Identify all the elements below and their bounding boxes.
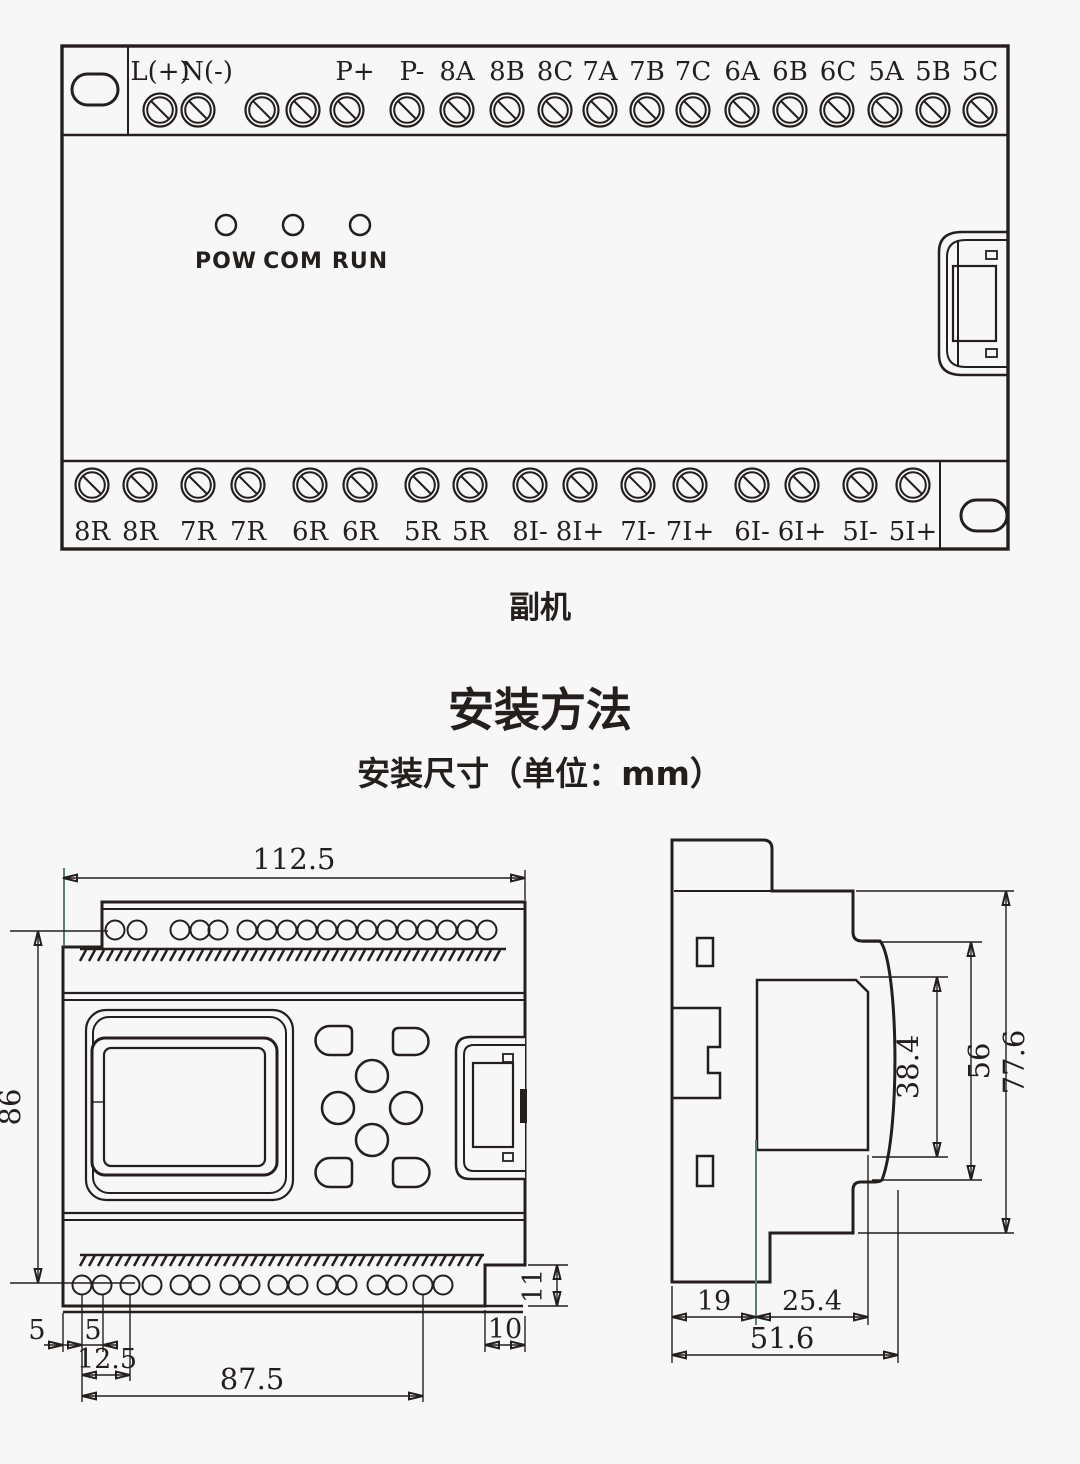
bottom-terminal-labels: 8R 8R 7R 7R 6R 6R 5R 5R 8I- 8I+ 7I- 7I+ … bbox=[74, 517, 937, 547]
screw-terminal-icon bbox=[774, 94, 807, 127]
terminal-label: 5R bbox=[404, 517, 442, 547]
terminal-label: 5B bbox=[915, 57, 951, 87]
screw-terminal-icon bbox=[539, 94, 572, 127]
screw-terminal-icon bbox=[76, 469, 109, 502]
terminal-label: 8R bbox=[122, 517, 160, 547]
dim-seg-mid-value: 25.4 bbox=[782, 1286, 842, 1317]
side-front-face bbox=[757, 980, 868, 1150]
keypad-button bbox=[316, 1158, 353, 1187]
keypad-button-right bbox=[390, 1092, 422, 1124]
terminal-label: 6R bbox=[292, 517, 330, 547]
led-com-icon bbox=[283, 215, 303, 235]
terminal-label: 8B bbox=[489, 57, 525, 87]
led-com-label: COM bbox=[263, 249, 323, 274]
screw-terminal-icon bbox=[786, 469, 819, 502]
screw-terminal-icon bbox=[491, 94, 524, 127]
lcd-screen bbox=[92, 1038, 277, 1175]
dim-hole-span-value: 87.5 bbox=[220, 1362, 285, 1396]
screw-terminal-icon bbox=[344, 469, 377, 502]
installation-dimension-drawing: 112.5 86 5 5 12.5 bbox=[0, 820, 1080, 1464]
bottom-terminal-screws bbox=[76, 469, 930, 502]
terminal-label: 8R bbox=[74, 517, 112, 547]
screw-terminal-icon bbox=[917, 94, 950, 127]
terminal-label: 6A bbox=[724, 57, 761, 87]
dim-side-base-chain: 19 25.4 51.6 bbox=[672, 1140, 898, 1363]
dim-side-body-depth-value: 56 bbox=[962, 1043, 996, 1080]
dim-first-group-value: 12.5 bbox=[77, 1344, 137, 1375]
side-view bbox=[672, 840, 895, 1282]
top-terminal-labels: L(+) N(-) P+ P- 8A 8B 8C 7A 7B 7C 6A 6B … bbox=[130, 57, 998, 87]
dim-hole-pitch-value: 5 bbox=[84, 1315, 101, 1346]
terminal-label: 8I+ bbox=[556, 517, 605, 547]
front-bottom-holes bbox=[73, 1276, 453, 1295]
screw-terminal-icon bbox=[441, 94, 474, 127]
terminal-label: 8I- bbox=[512, 517, 548, 547]
page: L(+) N(-) P+ P- 8A 8B 8C 7A 7B 7C 6A 6B … bbox=[0, 0, 1080, 1464]
din-serration-top bbox=[80, 950, 500, 961]
screw-terminal-icon bbox=[182, 94, 215, 127]
dim-side-front-depth: 38.4 bbox=[860, 977, 948, 1157]
front-view bbox=[63, 902, 527, 1312]
figure-caption: 副机 bbox=[0, 582, 1080, 627]
screw-terminal-icon bbox=[564, 469, 597, 502]
screw-terminal-icon bbox=[514, 469, 547, 502]
terminal-label: 8C bbox=[537, 57, 573, 87]
front-port-connector bbox=[456, 1037, 527, 1179]
terminal-label: 6C bbox=[820, 57, 856, 87]
dim-seg-left-value: 19 bbox=[697, 1286, 731, 1317]
screw-terminal-icon bbox=[331, 94, 364, 127]
keypad-button bbox=[316, 1026, 353, 1055]
terminal-label: 8A bbox=[439, 57, 476, 87]
section-subtitle: 安装尺寸（单位：mm） bbox=[0, 747, 1080, 795]
screw-terminal-icon bbox=[897, 469, 930, 502]
screw-terminal-icon bbox=[869, 94, 902, 127]
dim-side-total-depth-value: 77.6 bbox=[997, 1030, 1031, 1095]
led-pow-label: POW bbox=[195, 249, 257, 274]
din-serration-bottom bbox=[80, 1255, 482, 1266]
terminal-label: 6R bbox=[342, 517, 380, 547]
screw-terminal-icon bbox=[677, 94, 710, 127]
screw-terminal-icon bbox=[124, 469, 157, 502]
terminal-label: P- bbox=[400, 57, 425, 87]
dim-front-notch: 10 11 bbox=[485, 1265, 568, 1352]
screw-terminal-icon bbox=[821, 94, 854, 127]
terminal-label: 5I- bbox=[842, 517, 878, 547]
dim-base-width-value: 51.6 bbox=[750, 1321, 815, 1355]
terminal-label: 6I- bbox=[734, 517, 770, 547]
terminal-label: 7R bbox=[180, 517, 218, 547]
screw-terminal-icon bbox=[844, 469, 877, 502]
screw-terminal-icon bbox=[246, 94, 279, 127]
screw-terminal-icon bbox=[622, 469, 655, 502]
screw-terminal-icon bbox=[144, 94, 177, 127]
screw-terminal-icon bbox=[406, 469, 439, 502]
screw-terminal-icon bbox=[454, 469, 487, 502]
side-port-connector bbox=[939, 232, 1008, 375]
section-title: 安装方法 bbox=[0, 674, 1080, 740]
terminal-label: 5A bbox=[868, 57, 905, 87]
dim-front-height-value: 86 bbox=[0, 1089, 27, 1126]
screw-terminal-icon bbox=[964, 94, 997, 127]
screw-terminal-icon bbox=[287, 94, 320, 127]
screw-terminal-icon bbox=[391, 94, 424, 127]
dim-front-width-value: 112.5 bbox=[252, 842, 335, 876]
terminal-label: 6I+ bbox=[778, 517, 827, 547]
screw-terminal-icon bbox=[674, 469, 707, 502]
dim-front-bottom-chain: 5 5 12.5 87.5 bbox=[28, 1294, 423, 1402]
led-run-label: RUN bbox=[332, 249, 388, 274]
screw-terminal-icon bbox=[584, 94, 617, 127]
terminal-label: 5I+ bbox=[889, 517, 938, 547]
terminal-label: 7B bbox=[629, 57, 665, 87]
led-pow-icon bbox=[216, 215, 236, 235]
top-terminal-screws bbox=[144, 94, 997, 127]
dim-notch-width-value: 10 bbox=[488, 1314, 522, 1345]
status-leds: POW COM RUN bbox=[195, 215, 388, 274]
keypad bbox=[316, 1026, 430, 1187]
dim-edge-to-hole-value: 5 bbox=[28, 1315, 45, 1346]
terminal-label: 5C bbox=[962, 57, 998, 87]
keypad-button-up bbox=[356, 1060, 388, 1092]
front-top-holes bbox=[106, 921, 497, 940]
terminal-label: N(-) bbox=[181, 57, 233, 87]
terminal-module-diagram: L(+) N(-) P+ P- 8A 8B 8C 7A 7B 7C 6A 6B … bbox=[0, 0, 1080, 565]
screw-terminal-icon bbox=[736, 469, 769, 502]
dim-side-front-depth-value: 38.4 bbox=[891, 1035, 925, 1100]
keypad-button bbox=[393, 1028, 429, 1055]
screw-terminal-icon bbox=[726, 94, 759, 127]
keypad-button-left bbox=[322, 1092, 354, 1124]
mounting-slot-top-left bbox=[72, 74, 118, 105]
keypad-button-down bbox=[356, 1124, 388, 1156]
terminal-label: 7C bbox=[675, 57, 711, 87]
terminal-label: 7I+ bbox=[666, 517, 715, 547]
terminal-label: 7I- bbox=[620, 517, 656, 547]
mounting-slot-bottom-right bbox=[961, 500, 1007, 531]
terminal-label: 7A bbox=[582, 57, 619, 87]
din-rail-groove bbox=[672, 1008, 720, 1098]
screw-terminal-icon bbox=[182, 469, 215, 502]
terminal-label: P+ bbox=[335, 57, 374, 87]
screw-terminal-icon bbox=[631, 94, 664, 127]
keypad-button bbox=[393, 1158, 430, 1187]
terminal-label: 6B bbox=[772, 57, 808, 87]
dim-notch-height-value: 11 bbox=[518, 1269, 549, 1303]
screw-terminal-icon bbox=[294, 469, 327, 502]
terminal-label: 7R bbox=[230, 517, 268, 547]
screw-terminal-icon bbox=[232, 469, 265, 502]
terminal-label: 5R bbox=[452, 517, 490, 547]
led-run-icon bbox=[350, 215, 370, 235]
